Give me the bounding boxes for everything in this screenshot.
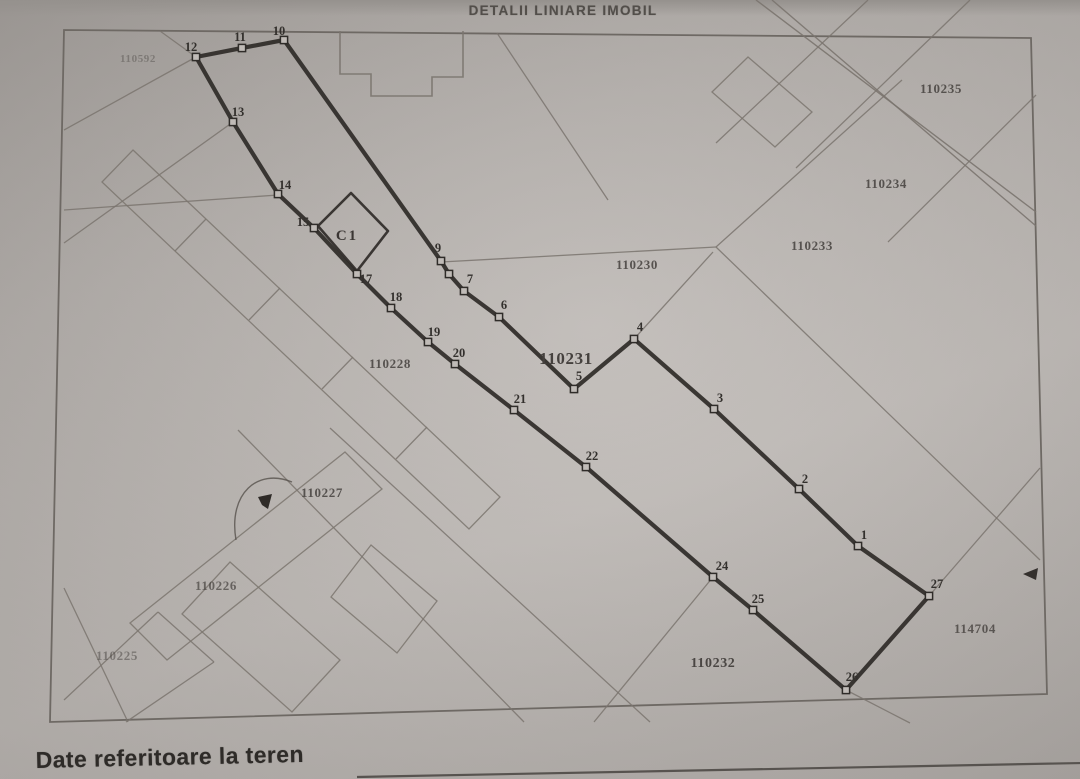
parcel-label: 110226	[195, 578, 237, 593]
vertex-number: 3	[717, 391, 723, 405]
arrow-mark	[1023, 568, 1038, 580]
parcel-label: 110234	[865, 176, 907, 191]
vertex-number: 13	[232, 105, 245, 119]
vertex-number: 2	[802, 472, 808, 486]
parcel-label: 110592	[120, 53, 156, 65]
parcel-label: 110227	[301, 485, 343, 500]
vertex-marker	[387, 304, 394, 311]
parcel-line	[716, 0, 868, 143]
parcel-line	[929, 468, 1040, 596]
map-frame	[50, 30, 1047, 722]
vertex-number: 4	[637, 320, 644, 334]
parcel-line	[441, 247, 716, 262]
vertex-marker	[709, 573, 716, 580]
parcel-line	[249, 288, 280, 320]
vertex-number: 6	[501, 298, 507, 312]
vertex-marker	[854, 542, 861, 549]
vertex-number: 22	[586, 449, 599, 463]
parcel-line	[846, 690, 910, 723]
vertex-number: 11	[234, 30, 246, 44]
vertex-marker	[238, 44, 245, 51]
vertex-number: 19	[428, 325, 441, 339]
vertex-number: 24	[716, 559, 729, 573]
parcel-label: 110233	[791, 238, 833, 253]
parcel-label: 110232	[691, 656, 736, 671]
parcel-line	[64, 195, 278, 210]
scanned-page: DETALII LINIARE IMOBIL C1123456791011121…	[0, 0, 1080, 779]
parcel-label: 114704	[954, 621, 996, 636]
parcel-line	[158, 612, 214, 662]
vertex-marker	[229, 118, 236, 125]
vertex-number: 7	[467, 272, 473, 286]
parcel-line	[175, 219, 206, 251]
parcel-line	[64, 122, 233, 243]
parcel-label: 110235	[920, 81, 962, 96]
parcel-line	[330, 428, 650, 722]
vertex-marker	[925, 592, 932, 599]
vertex-number: 17	[360, 272, 373, 286]
parcel-line	[594, 577, 713, 722]
building-outline	[340, 31, 463, 96]
parcel-label: 110231	[539, 349, 593, 368]
parcel-line	[716, 80, 902, 247]
vertex-marker	[842, 686, 849, 693]
vertex-number: 12	[185, 40, 198, 54]
table-top-rule	[357, 763, 1080, 777]
vertex-marker	[192, 53, 199, 60]
vertex-number: 27	[931, 577, 944, 591]
parcel-line	[126, 662, 214, 722]
parcel-line	[322, 357, 353, 389]
vertex-number: 25	[752, 592, 765, 606]
vertex-number: 15	[297, 215, 310, 229]
parcel-label: 110225	[96, 648, 138, 663]
vertex-marker	[510, 406, 517, 413]
ink-mark	[258, 494, 272, 509]
vertex-number: 20	[453, 346, 466, 360]
vertex-number: 26	[846, 670, 859, 684]
vertex-marker	[495, 313, 502, 320]
vertex-marker	[710, 405, 717, 412]
vertex-marker	[570, 385, 577, 392]
parcel-label: 110230	[616, 257, 658, 272]
vertex-marker	[795, 485, 802, 492]
parcel-outline	[331, 545, 437, 653]
building-c1-label: C1	[336, 228, 358, 244]
vertex-marker	[437, 257, 444, 264]
vertex-number: 1	[861, 528, 867, 542]
cadastral-map: C112345679101112131415171819202122242526…	[0, 0, 1080, 779]
vertex-marker	[424, 338, 431, 345]
parcel-outline	[102, 150, 500, 529]
parcel-line	[64, 57, 196, 130]
vertex-marker	[460, 287, 467, 294]
parcel-line	[716, 247, 1040, 560]
vertex-marker	[451, 360, 458, 367]
vertex-number: 21	[514, 392, 527, 406]
vertex-number: 18	[390, 290, 403, 304]
parcel-label: 110228	[369, 356, 411, 371]
vertex-number: 9	[435, 241, 441, 255]
vertex-marker	[310, 224, 317, 231]
vertex-number: 5	[576, 369, 582, 383]
vertex-marker	[630, 335, 637, 342]
vertex-marker	[582, 463, 589, 470]
vertex-number: 14	[279, 178, 292, 192]
parcel-line	[396, 427, 427, 459]
vertex-marker	[749, 606, 756, 613]
vertex-marker	[445, 270, 452, 277]
vertex-number: 10	[273, 24, 286, 38]
handwritten-arc	[235, 478, 292, 540]
parcel-line	[238, 430, 524, 722]
parcel-line	[497, 33, 608, 200]
